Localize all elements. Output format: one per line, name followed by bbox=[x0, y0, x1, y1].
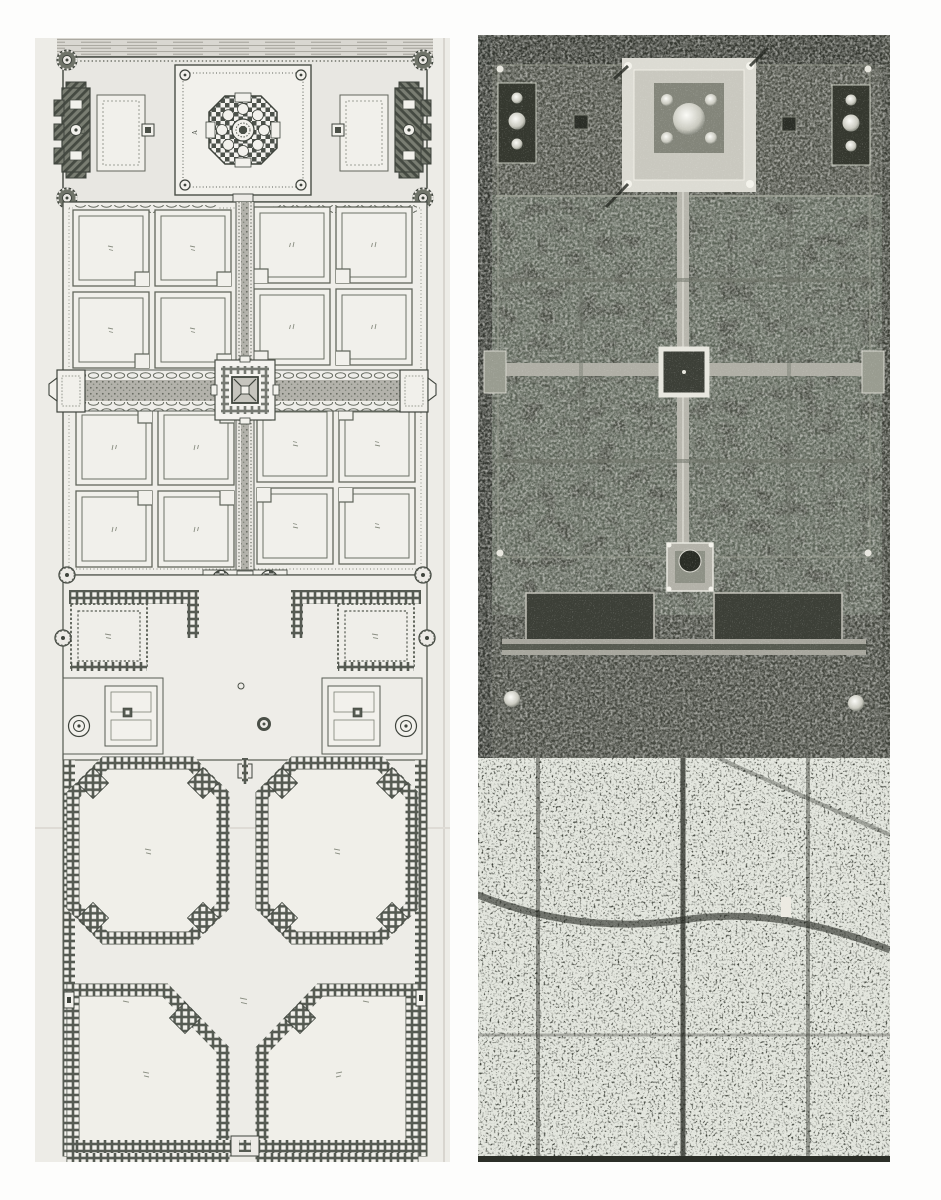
annotation-jawab: D bbox=[399, 133, 407, 138]
riverfront-band bbox=[57, 38, 433, 57]
well bbox=[257, 717, 271, 731]
khawasspura-west bbox=[71, 604, 147, 671]
mosque bbox=[54, 82, 145, 178]
khawasspura-east bbox=[338, 604, 414, 671]
jilaukhana bbox=[55, 575, 435, 760]
annotation-mausoleum: A bbox=[191, 130, 199, 135]
west-gate bbox=[64, 992, 74, 1008]
photo-bottom-edge bbox=[478, 1156, 890, 1162]
aerial-photo-svg bbox=[478, 35, 890, 1162]
charbagh-garden bbox=[49, 202, 436, 575]
serai-court-nw bbox=[73, 763, 223, 938]
wall-tower bbox=[419, 630, 435, 646]
riverfront-terrace bbox=[54, 50, 433, 208]
east-gate bbox=[416, 990, 426, 1006]
wall-tower bbox=[55, 630, 71, 646]
tank-marker bbox=[332, 124, 344, 136]
tank-marker bbox=[142, 124, 154, 136]
site-plan-svg: A C D bbox=[35, 38, 450, 1162]
garden-corner-tower bbox=[415, 567, 431, 583]
book-page: A C D bbox=[0, 0, 941, 1200]
film-grain bbox=[478, 35, 890, 1162]
mausoleum bbox=[206, 93, 280, 167]
jawab bbox=[340, 82, 431, 178]
serai-gate-south bbox=[231, 1136, 259, 1156]
bazaar-street-east bbox=[291, 590, 421, 604]
annotation-mosque: C bbox=[79, 129, 87, 134]
serai-court-ne bbox=[262, 763, 412, 938]
central-pool bbox=[211, 356, 279, 424]
corner-bastion bbox=[413, 50, 433, 70]
bazaar-street-west bbox=[69, 590, 199, 604]
plan-figure: A C D bbox=[35, 38, 450, 1162]
corner-bastion bbox=[57, 50, 77, 70]
garden-corner-tower bbox=[59, 567, 75, 583]
aerial-photo-figure bbox=[478, 35, 890, 1162]
